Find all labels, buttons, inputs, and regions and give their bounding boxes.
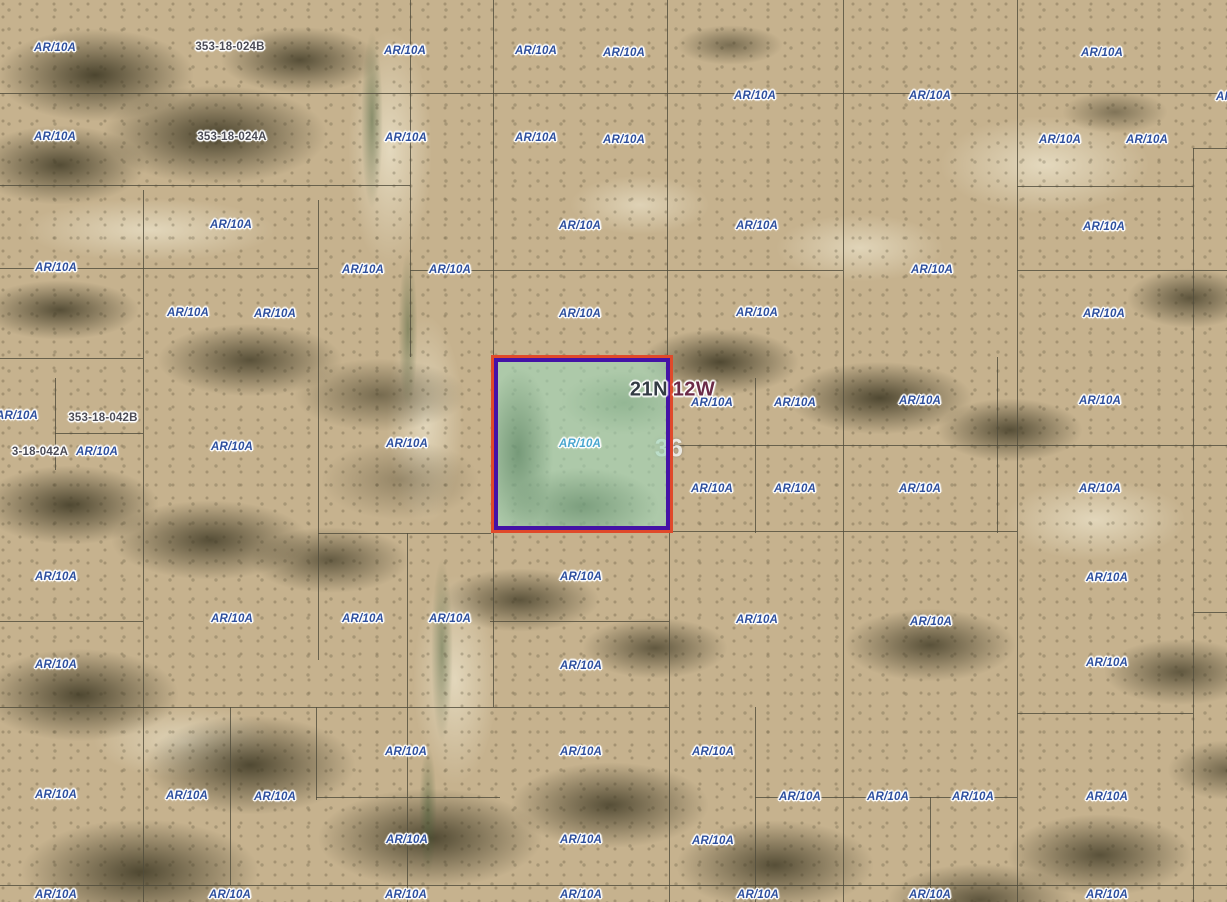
zoning-label: AR/10A (167, 307, 209, 319)
parcel-boundary-line (410, 270, 843, 271)
parcel-boundary-line (316, 707, 317, 800)
parcel-boundary-line (143, 190, 144, 902)
zoning-label: AR/10A (560, 746, 602, 758)
zoning-label: AR/10A (1086, 889, 1128, 901)
zoning-label: AR/10A (1081, 47, 1123, 59)
parcel-id-label: 353-18-024B (195, 41, 264, 53)
zoning-label: AR/10A (899, 483, 941, 495)
zoning-label: AR/10A (1086, 657, 1128, 669)
parcel-boundary-line (1017, 270, 1227, 271)
township-range-label: 21N (630, 379, 668, 402)
zoning-label: AR/10A (515, 132, 557, 144)
zoning-label: AR/10A (1083, 308, 1125, 320)
zoning-label: AR/10A (429, 264, 471, 276)
zoning-label: AR/10A (1079, 395, 1121, 407)
zoning-label: AR/10A (559, 308, 601, 320)
parcel-boundary-line (1193, 148, 1194, 902)
zoning-label: AR/10A (35, 262, 77, 274)
zoning-label: AR/10A (779, 791, 821, 803)
zoning-label: AR/10A (560, 889, 602, 901)
zoning-label: AR/10A (736, 220, 778, 232)
zoning-label: AR/10A (209, 889, 251, 901)
parcel-boundary-line (230, 707, 231, 885)
parcel-boundary-line (1017, 186, 1193, 187)
zoning-label: AR/10A (384, 45, 426, 57)
parcel-boundary-line (318, 200, 319, 660)
zoning-label: AR/10A (35, 789, 77, 801)
parcel-boundary-line (493, 0, 494, 356)
parcel-boundary-line (1193, 148, 1227, 149)
zoning-label: AR/10A (1083, 221, 1125, 233)
zoning-label: AR/10A (76, 446, 118, 458)
zoning-label: AR/10A (560, 834, 602, 846)
zoning-label: AR/10A (691, 483, 733, 495)
zoning-label: AR/10A (736, 614, 778, 626)
zoning-label: AR/10A (952, 791, 994, 803)
zoning-label: AR/10A (35, 889, 77, 901)
zoning-label: AR/10A (1079, 483, 1121, 495)
zoning-label: AR/10A (692, 835, 734, 847)
zoning-label: AR/10A (342, 613, 384, 625)
zoning-label: AR/10A (254, 791, 296, 803)
zoning-label: AR/10A (1126, 134, 1168, 146)
parcel-id-label: 3-18-042A (12, 446, 68, 458)
zoning-label: AR/10A (1039, 134, 1081, 146)
parcel-boundary-line (0, 707, 669, 708)
parcel-boundary-line (0, 621, 143, 622)
zoning-label: AR/10A (1086, 791, 1128, 803)
parcel-boundary-line (667, 0, 668, 356)
zoning-label: AR/10A (35, 659, 77, 671)
zoning-label: AR/10A (737, 889, 779, 901)
zoning-label: AR/10A (0, 410, 38, 422)
parcel-boundary-line (407, 533, 408, 902)
parcel-boundary-line (930, 797, 931, 902)
zoning-label: AR/10A (166, 790, 208, 802)
parcel-id-label: 353-18-024A (197, 131, 266, 143)
parcel-boundary-line (1017, 0, 1018, 902)
zoning-label: AR/10A (603, 47, 645, 59)
zoning-label: AR/10A (211, 613, 253, 625)
parcel-boundary-line (673, 445, 1227, 446)
parcel-boundary-line (0, 885, 1227, 886)
parcel-boundary-line (0, 93, 1227, 94)
zoning-label: AR/10A (385, 132, 427, 144)
zoning-label: AR/10A (342, 264, 384, 276)
parcel-boundary-line (755, 707, 756, 902)
parcel-boundary-line (755, 378, 756, 533)
parcel-boundary-line (316, 797, 500, 798)
zoning-label: AR/10A (560, 571, 602, 583)
zoning-label: AR/10A (385, 889, 427, 901)
zoning-label: AR/10A (34, 42, 76, 54)
parcel-boundary-line (318, 533, 491, 534)
zoning-label: AR/10A (910, 616, 952, 628)
zoning-label: AR/10A (899, 395, 941, 407)
zoning-label: AR/10A (909, 889, 951, 901)
map-canvas[interactable]: 36 AR/10AAR/10AAR/10AAR/10AAR/10AAR/10AA… (0, 0, 1227, 902)
zoning-label: AR/10A (692, 746, 734, 758)
zoning-label: AR/10A (1216, 91, 1227, 103)
zoning-label: AR/10A (386, 438, 428, 450)
parcel-id-label: 353-18-042B (68, 412, 137, 424)
zoning-label: AR/10A (386, 834, 428, 846)
zoning-label: AR/10A (909, 90, 951, 102)
zoning-label: AR/10A (603, 134, 645, 146)
parcel-boundary-line (843, 0, 844, 902)
zoning-label: AR/10A (254, 308, 296, 320)
zoning-label: AR/10A (35, 571, 77, 583)
parcel-boundary-line (55, 433, 143, 434)
zoning-label: AR/10A (774, 483, 816, 495)
zoning-label: AR/10A (211, 441, 253, 453)
zoning-label: AR/10A (1086, 572, 1128, 584)
zoning-label: AR/10A (734, 90, 776, 102)
zoning-label: AR/10A (560, 660, 602, 672)
zoning-label: AR/10A (736, 307, 778, 319)
zoning-label: AR/10A (515, 45, 557, 57)
parcel-boundary-line (493, 533, 494, 707)
parcel-boundary-line (669, 533, 670, 902)
parcel-boundary-line (0, 185, 410, 186)
parcel-boundary-line (673, 531, 1017, 532)
parcel-boundary-line (0, 358, 143, 359)
parcel-boundary-line (1193, 612, 1227, 613)
zoning-label: AR/10A (911, 264, 953, 276)
zoning-label: AR/10A (385, 746, 427, 758)
zoning-label: AR/10A (34, 131, 76, 143)
zoning-label: AR/10A (210, 219, 252, 231)
zoning-label: AR/10A (429, 613, 471, 625)
zoning-label: AR/10A (867, 791, 909, 803)
parcel-boundary-line (490, 621, 669, 622)
selected-parcel-zoning-label: AR/10A (559, 438, 601, 450)
township-range-label: 12W (673, 379, 716, 402)
parcel-boundary-line (1017, 713, 1193, 714)
zoning-label: AR/10A (559, 220, 601, 232)
zoning-label: AR/10A (774, 397, 816, 409)
